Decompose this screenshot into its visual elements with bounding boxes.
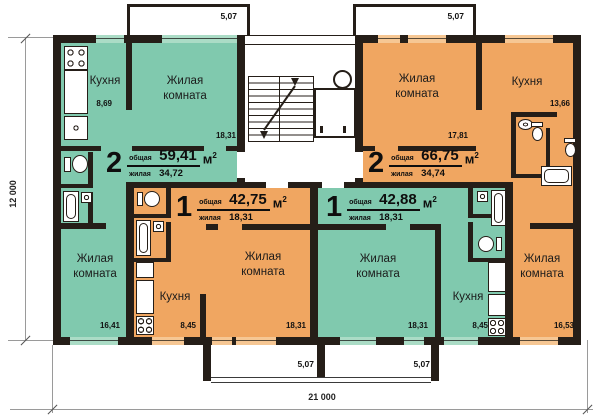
- wall-segment: [166, 188, 171, 214]
- elevator-jamb: [343, 126, 346, 133]
- unit-label: м2: [203, 151, 217, 166]
- apartment-summary-left-one-room: 1 общая42,75 жилая18,31 м2: [176, 191, 287, 223]
- total-label: общая: [391, 155, 421, 162]
- total-area: 59,41: [159, 147, 197, 164]
- window: [152, 337, 184, 345]
- total-label: общая: [349, 199, 379, 206]
- width-dimension-line: [10, 409, 593, 410]
- balcony-dimension: 5,07: [378, 359, 430, 369]
- wall-segment: [410, 224, 435, 230]
- toilet-icon: [64, 157, 71, 172]
- projection-line: [8, 37, 53, 38]
- apartment-summary-left-two-room: 2 общая59,41 жилая34,72 м2: [106, 147, 217, 179]
- height-dimension-line: [25, 38, 26, 341]
- wall-segment: [242, 224, 310, 230]
- projection-line: [52, 345, 53, 413]
- sink-icon: [153, 221, 164, 232]
- wall-segment: [166, 222, 171, 258]
- unit-label: м2: [423, 195, 437, 210]
- living-area: 18,31: [379, 212, 403, 223]
- wall-segment: [511, 112, 557, 117]
- window: [520, 337, 558, 345]
- bathtub-icon: [491, 190, 506, 226]
- living-label: жилая: [199, 215, 229, 222]
- room-label-kitchen: Кухня: [438, 290, 498, 305]
- balcony-dimension: 5,07: [412, 11, 464, 21]
- wall-segment: [468, 188, 473, 214]
- projection-line: [8, 340, 53, 341]
- rooms-count: 1: [176, 195, 192, 220]
- wall-segment: [61, 223, 106, 229]
- bathtub-icon: [63, 191, 79, 222]
- wall-segment: [476, 43, 482, 110]
- stove-icon: [488, 318, 506, 336]
- room-label-kitchen: Кухня: [145, 290, 205, 305]
- living-label: жилая: [129, 171, 159, 178]
- rooms-count: 2: [368, 151, 384, 176]
- living-label: жилая: [349, 215, 379, 222]
- balcony-wall: [431, 345, 439, 381]
- wall-segment: [88, 152, 93, 184]
- fridge-icon: [136, 262, 154, 278]
- unit-label: м2: [465, 151, 479, 166]
- door-opening: [322, 182, 344, 188]
- room-label-living: Жилая комната: [153, 74, 217, 104]
- window: [162, 35, 237, 43]
- window: [96, 35, 124, 43]
- room-area: 13,66: [540, 99, 570, 108]
- sink-icon: [477, 191, 488, 202]
- floor-plan: 12 000 21 000 5,07 5,07: [0, 0, 600, 416]
- unit-label: м2: [273, 195, 287, 210]
- window: [505, 35, 553, 43]
- total-label: общая: [129, 155, 159, 162]
- total-label: общая: [199, 199, 229, 206]
- living-area: 18,31: [229, 212, 253, 223]
- balcony-dimension: 5,07: [185, 11, 237, 21]
- height-dimension-label: 12 000: [8, 164, 18, 224]
- kitchen-counter-icon: [488, 262, 506, 292]
- room-label-living: Жилая комната: [385, 72, 449, 102]
- stove-icon: [64, 46, 88, 70]
- toilet-icon: [532, 127, 543, 141]
- balcony-wall: [317, 345, 325, 381]
- wall-segment: [530, 223, 573, 229]
- balcony-wall: [203, 345, 211, 381]
- balcony-dimension: 5,07: [262, 359, 314, 369]
- toilet-icon: [137, 192, 143, 206]
- room-area: 16,53: [544, 321, 574, 330]
- apartment-summary-right-one-room: 1 общая42,88 жилая18,31 м2: [326, 191, 437, 223]
- room-label-living: Жилая комната: [63, 252, 127, 282]
- toilet-icon: [496, 237, 502, 251]
- toilet-icon: [478, 236, 494, 252]
- balcony-door: [212, 337, 232, 345]
- sink-icon: [81, 192, 92, 203]
- wall-segment: [61, 184, 93, 188]
- room-area: 18,31: [398, 321, 428, 330]
- wall-segment: [226, 146, 237, 151]
- living-area: 34,72: [159, 168, 183, 179]
- door-opening: [266, 182, 288, 188]
- wall-segment: [61, 146, 101, 151]
- wall-segment: [318, 224, 386, 230]
- room-label-living: Жилая комната: [346, 252, 410, 282]
- window: [236, 337, 276, 345]
- room-label-kitchen: Кухня: [497, 75, 557, 90]
- projection-line: [587, 340, 588, 413]
- wall-segment: [511, 117, 516, 174]
- total-area: 42,75: [229, 191, 267, 208]
- wall-segment: [468, 222, 473, 258]
- rooms-count: 2: [106, 151, 122, 176]
- door-opening: [237, 152, 245, 178]
- room-area: 16,41: [90, 321, 120, 330]
- room-area: 8,69: [88, 99, 112, 108]
- sink-icon: [64, 116, 88, 140]
- total-area: 66,75: [421, 147, 459, 164]
- window: [70, 337, 118, 345]
- balcony-railing: [211, 377, 431, 383]
- door-opening: [355, 152, 363, 178]
- room-area: 8,45: [170, 321, 196, 330]
- window: [408, 35, 446, 43]
- total-area: 42,88: [379, 191, 417, 208]
- window: [378, 35, 400, 43]
- toilet-icon: [144, 191, 160, 207]
- living-label: жилая: [391, 171, 421, 178]
- room-label-living: Жилая комната: [231, 250, 295, 280]
- room-label-kitchen: Кухня: [75, 74, 135, 89]
- room-area: 17,81: [436, 131, 468, 140]
- wall-segment: [435, 224, 441, 337]
- elevator-jamb: [320, 126, 323, 133]
- apartment-summary-right-two-room: 2 общая66,75 жилая34,74 м2: [368, 147, 479, 179]
- window: [444, 337, 478, 345]
- room-area: 18,31: [276, 321, 306, 330]
- room-area: 18,31: [206, 131, 236, 140]
- wall-segment: [206, 224, 218, 230]
- rooms-count: 1: [326, 195, 342, 220]
- balcony-door: [404, 337, 424, 345]
- toilet-icon: [565, 143, 576, 157]
- stove-icon: [136, 316, 154, 335]
- room-label-living: Жилая комната: [509, 252, 575, 282]
- room-area: 8,45: [462, 321, 488, 330]
- toilet-icon: [72, 155, 88, 173]
- wall-segment: [134, 214, 171, 218]
- bathtub-icon: [136, 220, 151, 256]
- living-area: 34,74: [421, 168, 445, 179]
- bathtub-icon: [541, 166, 572, 186]
- window: [340, 337, 376, 345]
- width-dimension-label: 21 000: [290, 392, 354, 402]
- garbage-chute-icon: [333, 70, 352, 89]
